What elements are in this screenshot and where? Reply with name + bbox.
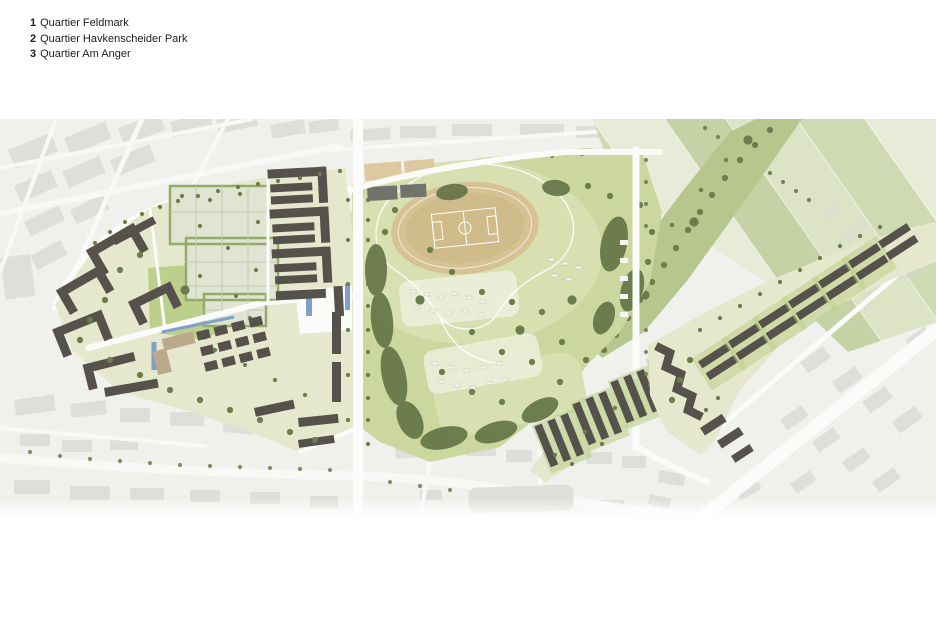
legend-item-3: 3Quartier Am Anger (30, 47, 187, 63)
sports-court-2 (400, 184, 427, 198)
sports-court (367, 185, 398, 201)
legend-label-3: Quartier Am Anger (40, 48, 131, 60)
page: 1Quartier Feldmark 2Quartier Havkenschei… (0, 0, 936, 624)
legend-number-2: 2 (30, 33, 36, 45)
legend-label-1: Quartier Feldmark (40, 17, 129, 29)
legend: 1Quartier Feldmark 2Quartier Havkenschei… (30, 16, 187, 63)
masterplan-map (0, 119, 936, 519)
legend-item-2: 2Quartier Havkenscheider Park (30, 32, 187, 48)
legend-label-2: Quartier Havkenscheider Park (40, 33, 187, 45)
legend-item-1: 1Quartier Feldmark (30, 16, 187, 32)
legend-number-3: 3 (30, 48, 36, 60)
existing-large-structure (468, 484, 574, 514)
legend-number-1: 1 (30, 17, 36, 29)
